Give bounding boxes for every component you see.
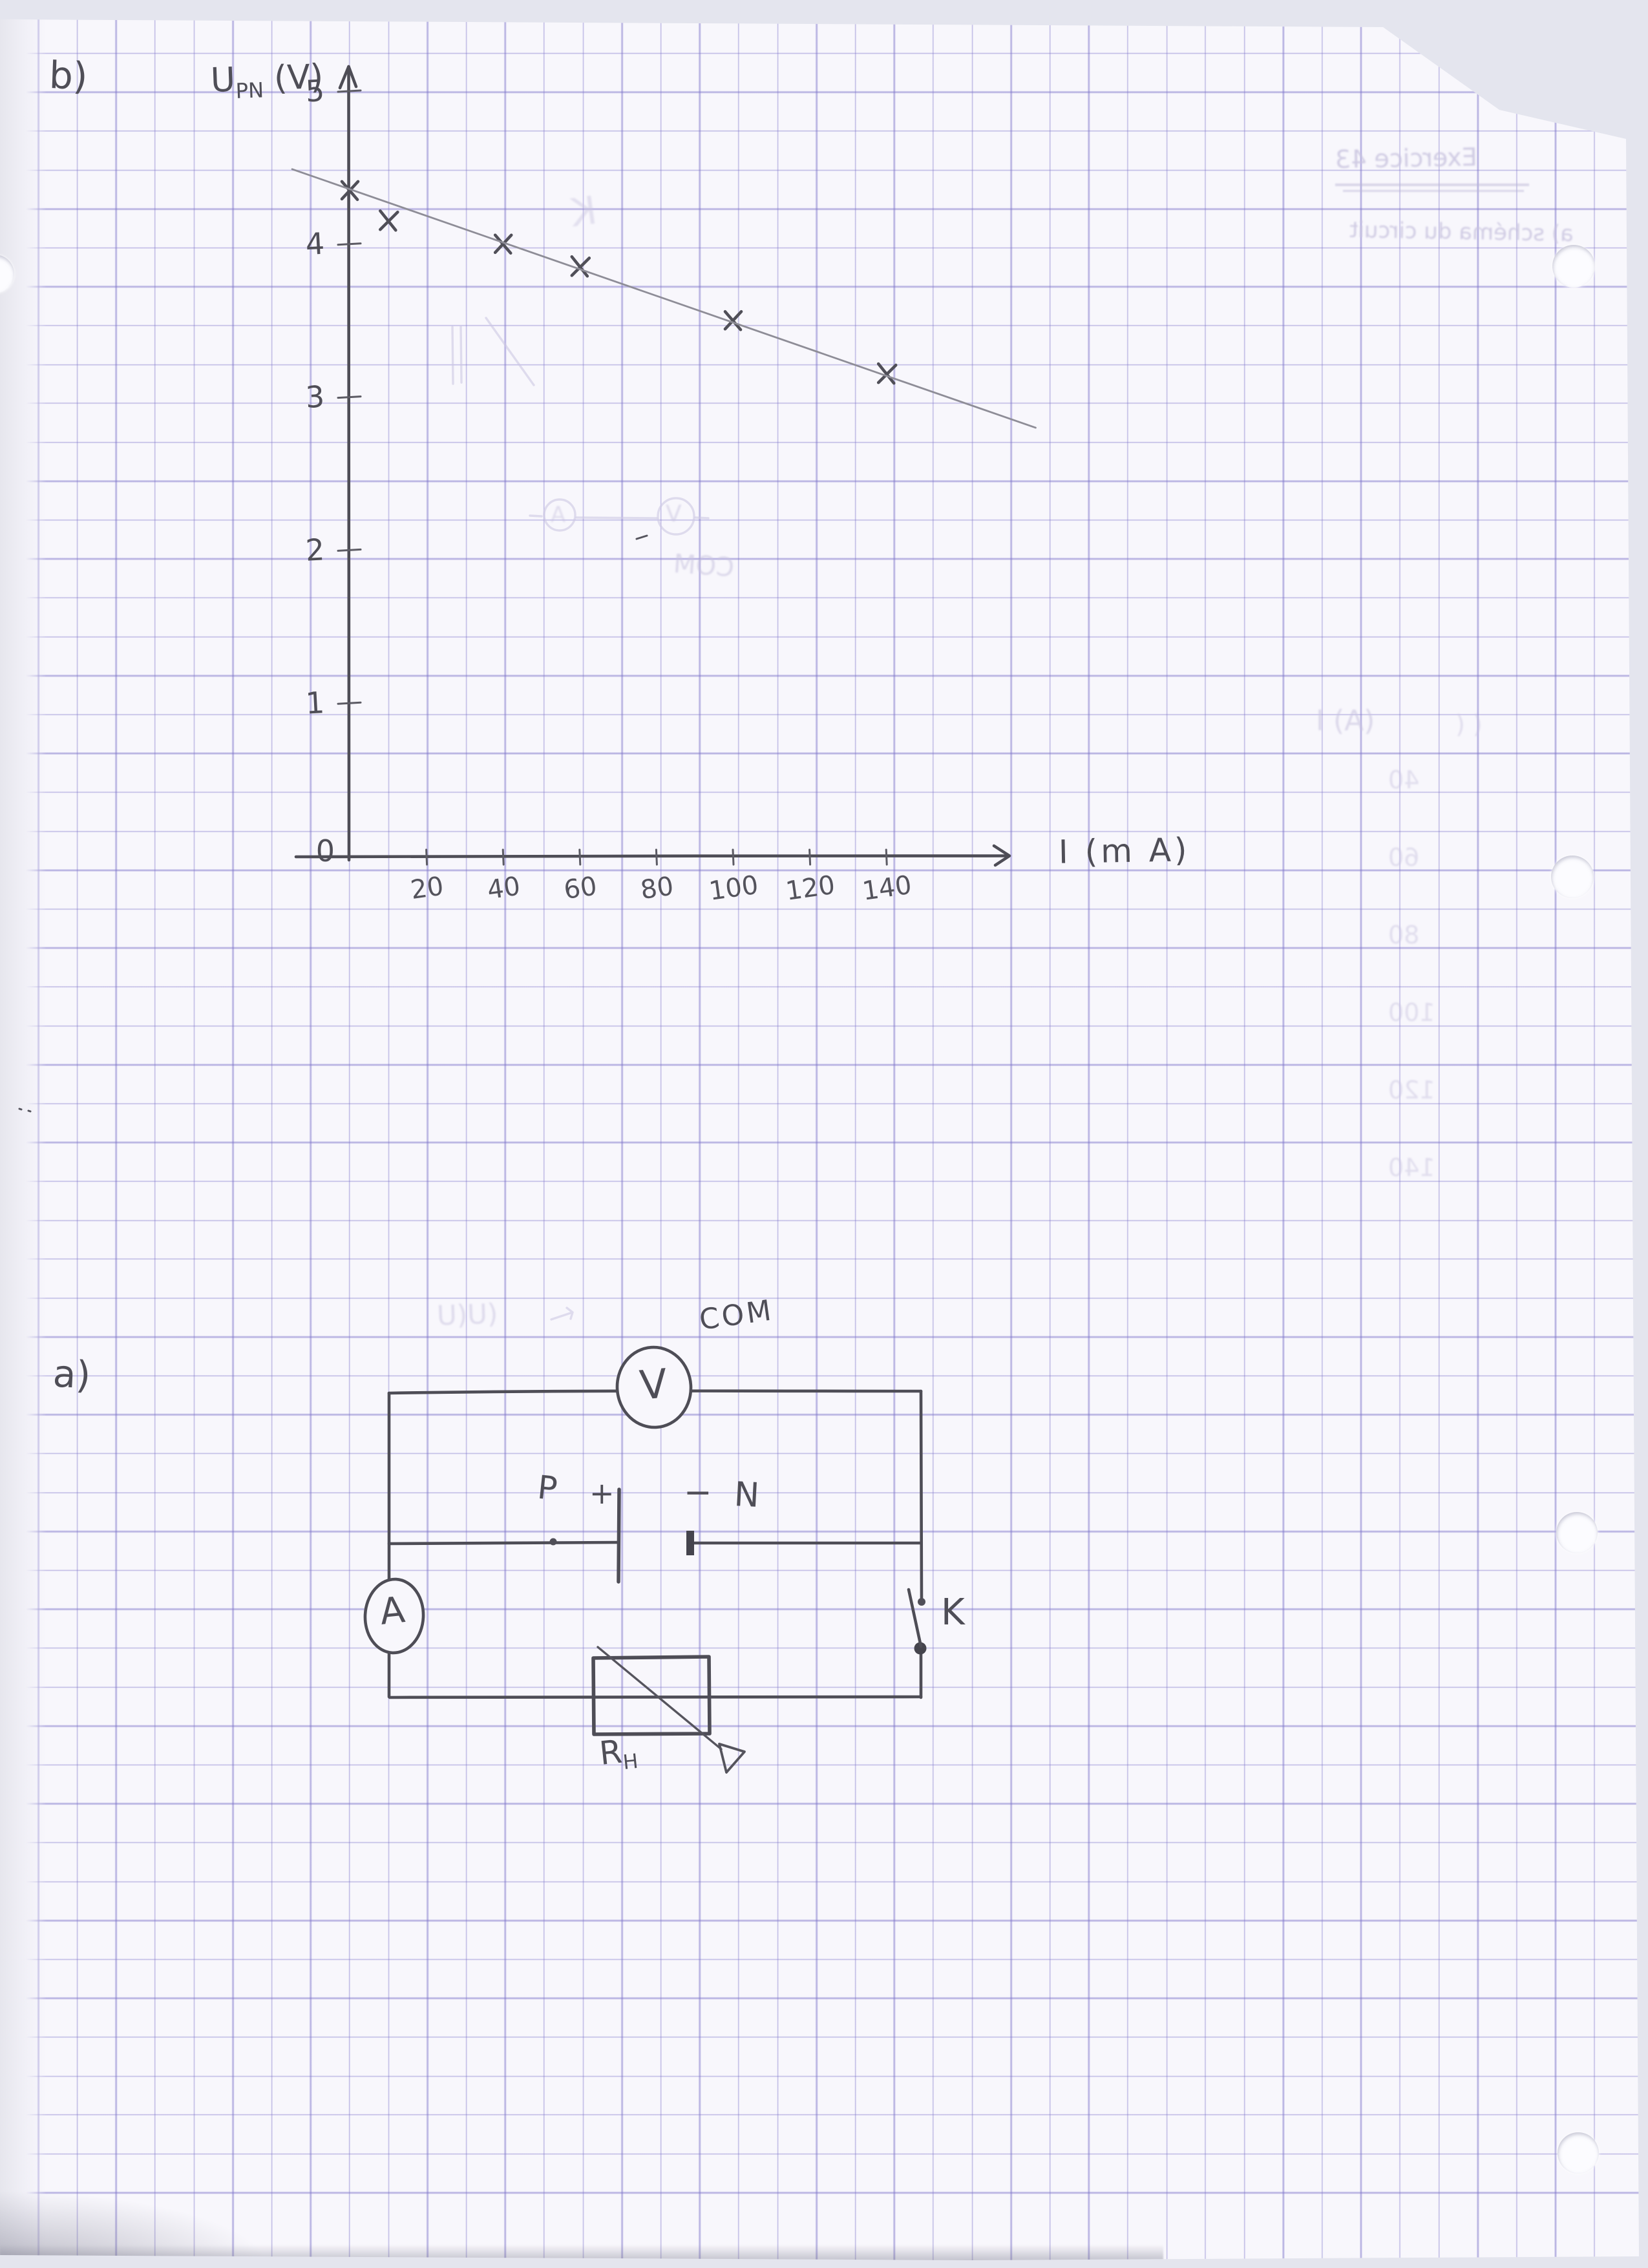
x-tick-label: 100: [707, 870, 760, 907]
stray-pencil-dash: [637, 536, 647, 539]
x-tick: [810, 850, 810, 865]
y-tick-label: 2: [304, 532, 325, 567]
switch-upper-contact: [918, 1598, 925, 1606]
pencil-drawing-layer: 12345020406080100120140: [0, 0, 1648, 2268]
x-axis-line: [296, 856, 1006, 857]
rheostat-label-sub: H: [622, 1750, 639, 1774]
y-tick-label: 3: [304, 379, 325, 414]
ghost-wire: [530, 516, 708, 518]
x-tick-label: 80: [639, 871, 675, 905]
y-axis-line: [348, 67, 349, 860]
battery-negative-label: N: [734, 1478, 761, 1513]
ghost-rheostat-strokes: [452, 318, 534, 385]
x-tick: [503, 850, 503, 865]
section-b-label: b): [48, 56, 88, 95]
battery-positive-plate: [618, 1489, 619, 1582]
y-tick: [338, 397, 361, 398]
x-tick: [886, 850, 887, 865]
section-a-label: a): [52, 1355, 92, 1394]
x-tick: [733, 850, 734, 865]
x-tick-label: 40: [485, 871, 522, 905]
x-tick: [656, 850, 657, 865]
battery-minus-sign: −: [684, 1476, 712, 1509]
data-point-x-mark: [380, 211, 397, 230]
rheostat-label-base: R: [598, 1733, 624, 1772]
ghost-arrow: [551, 1308, 573, 1319]
scanned-notebook-page: Exercice 43 a) schéma du circuit K (A) I…: [0, 0, 1648, 2268]
y-tick: [338, 549, 361, 551]
ghost-voltmeter-circle: [658, 498, 694, 534]
y-axis-title: UPN (V): [210, 60, 324, 103]
switch-blade: [909, 1590, 921, 1646]
y-tick: [338, 244, 361, 245]
wire-bottom: [390, 1697, 921, 1697]
data-points-and-fit-line: [292, 169, 1035, 428]
stray-margin-dots: [19, 1109, 30, 1111]
x-tick-label: 20: [408, 871, 445, 905]
wire-right-rail-upper: [921, 1391, 922, 1602]
x-axis-title: I (m A): [1059, 834, 1190, 868]
battery-positive-label: P: [536, 1471, 558, 1506]
axis-ticks-and-labels: 12345020406080100120140: [304, 73, 913, 907]
x-tick: [580, 850, 580, 865]
origin-label: 0: [316, 834, 335, 868]
ghost-ammeter-circle: [544, 499, 575, 530]
y-tick: [338, 702, 361, 704]
y-tick: [338, 90, 361, 92]
y-tick-label: 1: [304, 685, 325, 720]
rheostat-cursor-arrowhead: [719, 1744, 745, 1772]
y-axis-title-sub: PN: [235, 78, 264, 103]
graph-axes: [296, 67, 1009, 865]
y-axis-title-unit: (V): [273, 58, 324, 98]
wire-middle-left: [389, 1542, 618, 1544]
rheostat-body: [593, 1657, 710, 1734]
x-tick-label: 140: [860, 870, 913, 907]
battery-plus-sign: +: [589, 1478, 615, 1508]
y-axis-title-base: U: [210, 61, 236, 100]
circuit-diagram: [19, 536, 927, 1772]
x-tick-label: 120: [784, 870, 837, 907]
ghost-circuit-shapes: [452, 318, 708, 1319]
x-tick: [427, 850, 427, 865]
y-tick-label: 4: [304, 226, 325, 262]
switch-label: K: [941, 1595, 965, 1631]
x-tick-label: 60: [562, 871, 599, 905]
wire-junction-dot: [550, 1538, 557, 1546]
rheostat-label: RH: [598, 1734, 639, 1776]
ammeter-label: A: [378, 1592, 407, 1631]
voltmeter-label: V: [638, 1363, 669, 1405]
best-fit-line: [292, 169, 1035, 428]
